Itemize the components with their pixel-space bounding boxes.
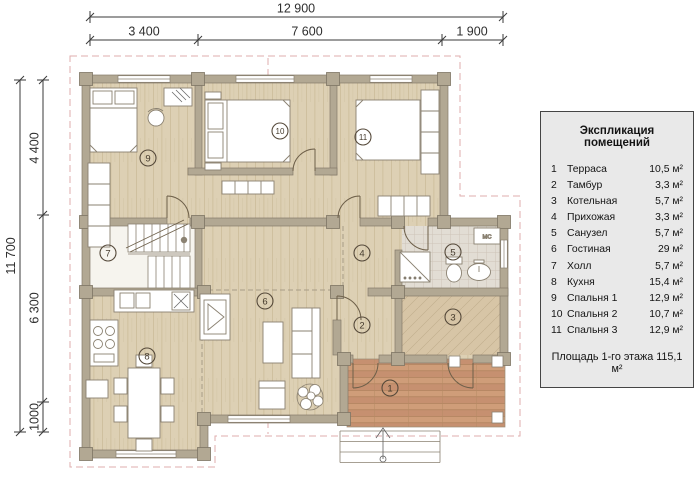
legend-row: 11Спальня 312,9 м²: [551, 323, 683, 339]
svg-text:8: 8: [144, 351, 149, 362]
legend-title: Экспликация помещений: [551, 125, 683, 149]
legend-row: 2Тамбур3,3 м²: [551, 178, 683, 194]
svg-text:1: 1: [387, 383, 392, 394]
legend-row: 5Санузел5,7 м²: [551, 226, 683, 242]
floor-plan-page: МС 1 2 3 4 5 6 7 8 9 10 11: [0, 0, 700, 489]
stove: [90, 320, 118, 366]
dim-left-total-label: 11 700: [4, 237, 18, 274]
armchair: [259, 381, 285, 409]
toilet: [446, 257, 462, 282]
chair-room9: [148, 110, 164, 126]
svg-text:5: 5: [450, 247, 455, 258]
entrance-arrow-icon: [376, 428, 390, 462]
dim-top-seg1-label: 3 400: [128, 25, 159, 39]
coffee-table: [263, 322, 283, 363]
legend-row: 8Кухня15,4 м²: [551, 275, 683, 291]
fireplace: [200, 294, 230, 340]
washing-machine-label: МС: [482, 235, 491, 241]
legend-row: 3Котельная5,7 м²: [551, 194, 683, 210]
legend-footer: Площадь 1-го этажа 115,1 м²: [551, 351, 683, 375]
legend-rows: 1Терраса10,5 м² 2Тамбур3,3 м² 3Котельная…: [551, 162, 683, 339]
shower: [400, 252, 430, 282]
kitchen-counter: [114, 290, 194, 312]
svg-text:3: 3: [450, 312, 455, 323]
dim-top-total-label: 12 900: [277, 2, 315, 16]
terrace-floor: [347, 359, 505, 427]
dim-top-seg3-label: 1 900: [456, 25, 487, 39]
dim-top-seg2-label: 7 600: [291, 25, 322, 39]
svg-text:10: 10: [276, 127, 285, 136]
legend-row: 7Холл5,7 м²: [551, 259, 683, 275]
svg-text:9: 9: [145, 153, 150, 164]
fridge: [86, 380, 108, 398]
svg-text:4: 4: [359, 248, 364, 259]
legend-row: 4Прихожая3,3 м²: [551, 210, 683, 226]
legend-row: 10Спальня 210,7 м²: [551, 307, 683, 323]
bed-room9: [90, 88, 137, 152]
dim-left-seg1-label: 4 400: [28, 132, 42, 163]
stair-newel-post: [181, 237, 187, 243]
legend-row: 1Терраса10,5 м²: [551, 162, 683, 178]
dim-left-seg2-label: 6 300: [28, 292, 42, 323]
boiler-floor: [402, 296, 500, 355]
dimension-left-segments: [37, 76, 49, 436]
svg-text:7: 7: [105, 248, 110, 259]
legend-row: 9Спальня 112,9 м²: [551, 291, 683, 307]
washing-machine: МС: [474, 228, 500, 244]
sofa: [292, 308, 320, 378]
svg-text:11: 11: [359, 133, 368, 142]
svg-text:6: 6: [262, 296, 267, 307]
legend-panel: Экспликация помещений 1Терраса10,5 м² 2Т…: [540, 111, 694, 388]
svg-text:2: 2: [359, 320, 364, 331]
legend-row: 6Гостиная29 м²: [551, 242, 683, 258]
dim-left-seg3-label: 1000: [28, 403, 42, 431]
